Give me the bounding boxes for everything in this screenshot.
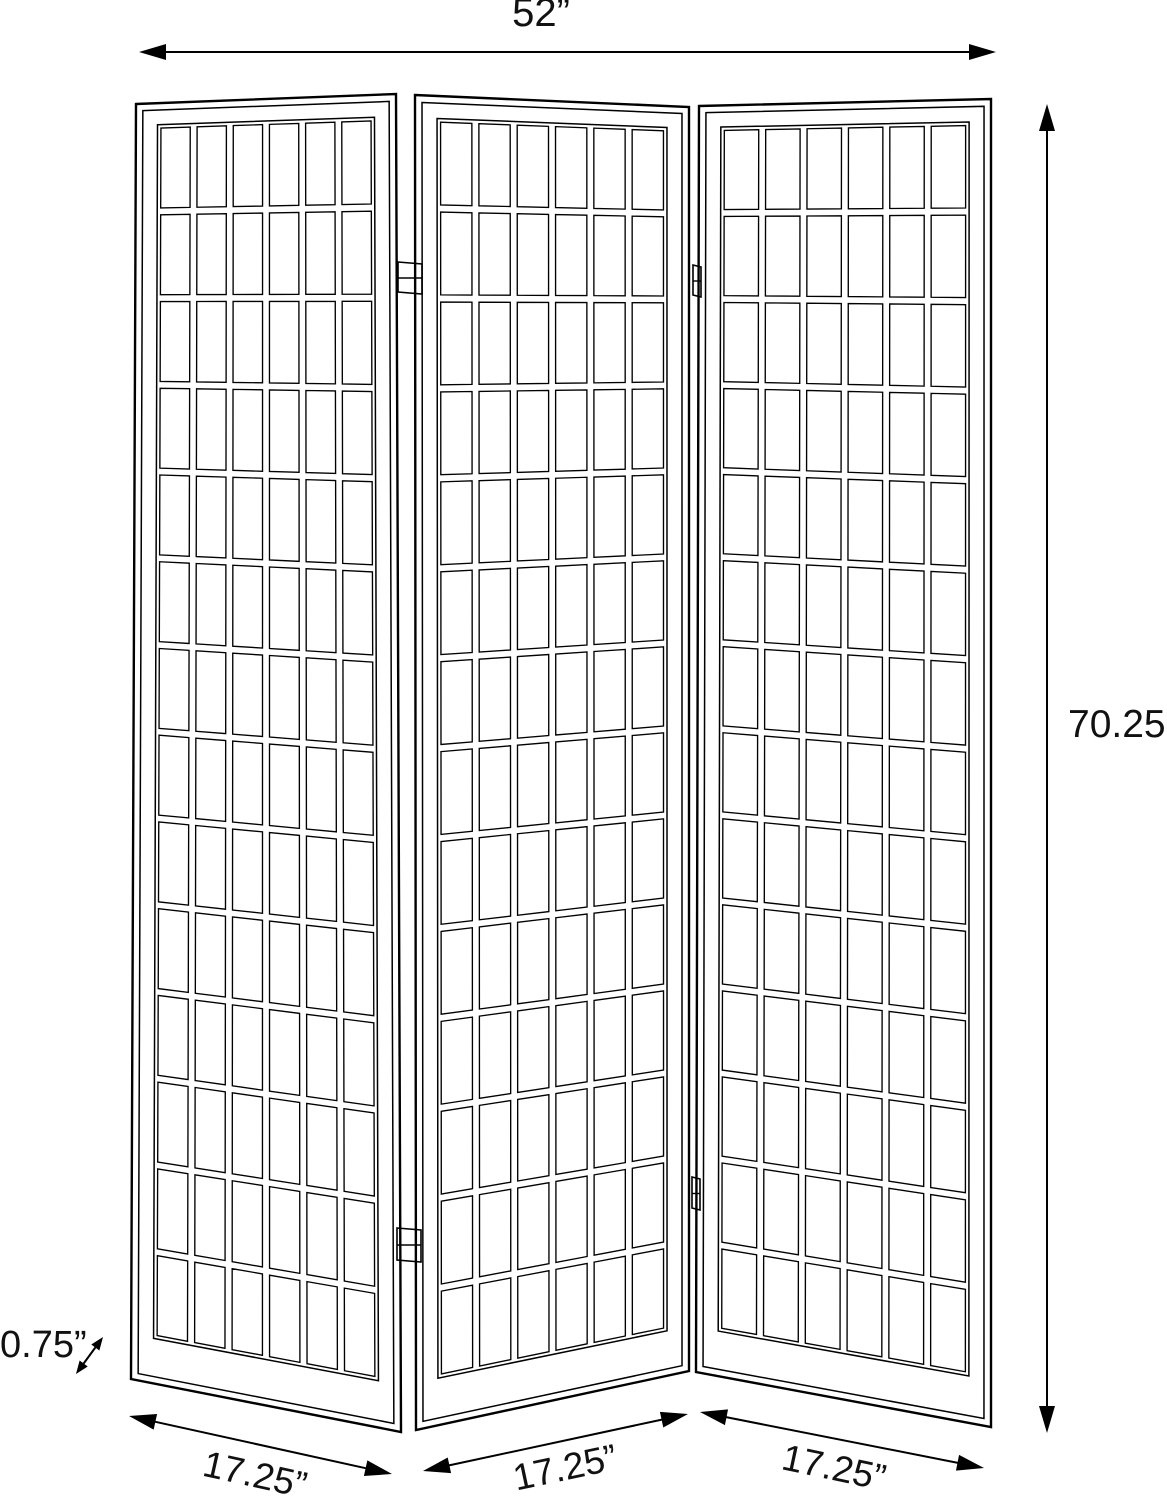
- room-divider-drawing: [0, 0, 1167, 1500]
- dim-label-height: 70.25”: [1068, 705, 1167, 744]
- dim-label-total-width: 52”: [441, 0, 641, 33]
- dim-label-frame-thickness: 0.75”: [0, 1326, 87, 1364]
- dimension-diagram: 52” 70.25” 0.75” 17.25” 17.25” 17.25”: [0, 0, 1167, 1500]
